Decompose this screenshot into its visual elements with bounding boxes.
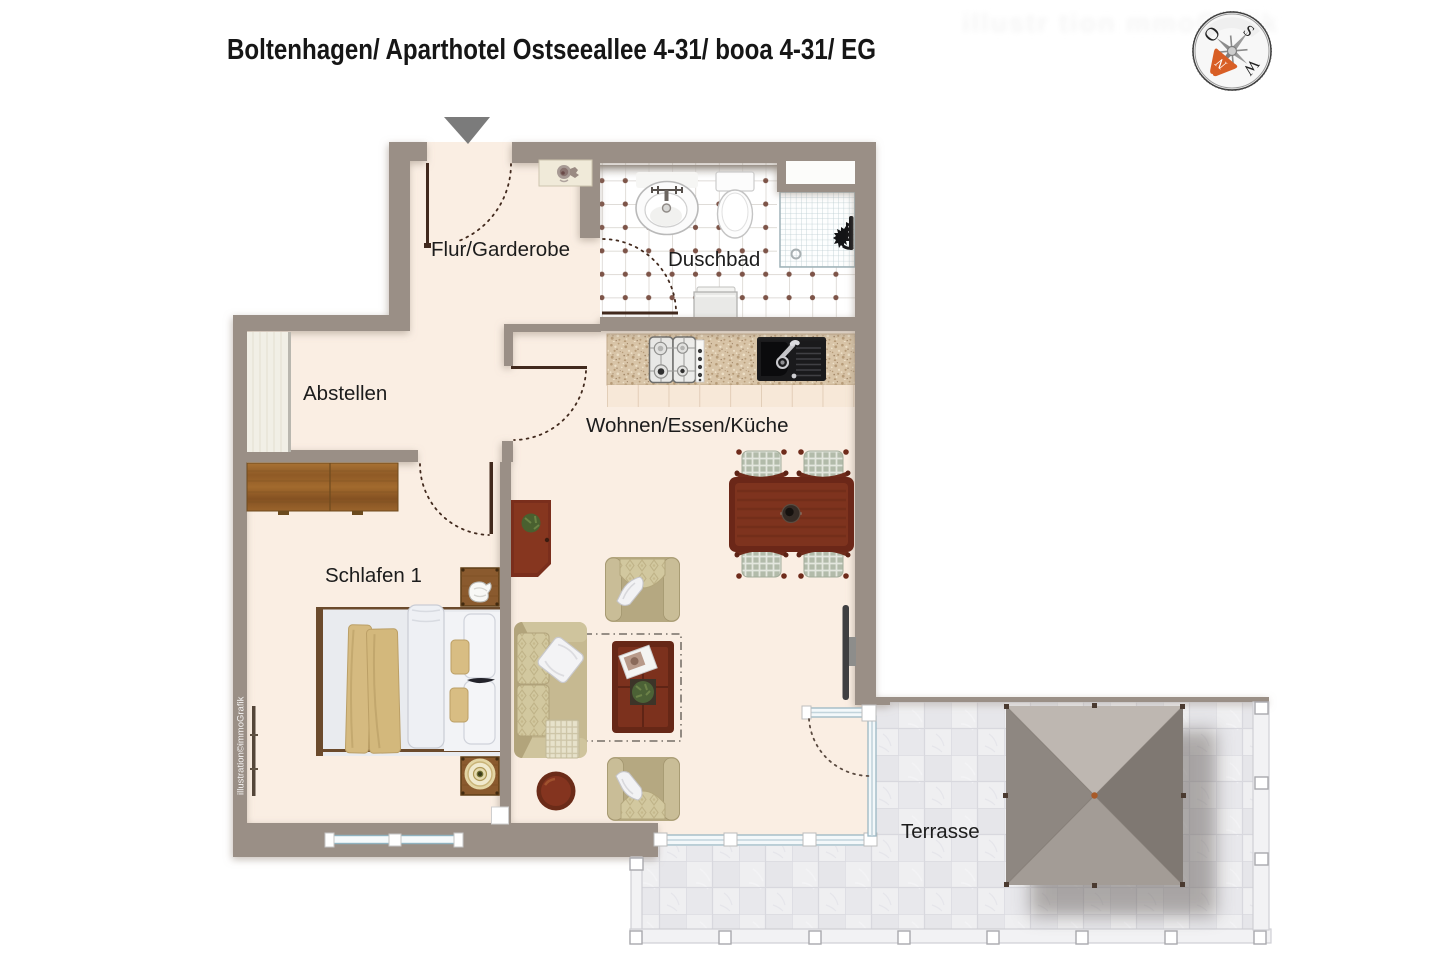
svg-text:Boltenhagen/ Aparthotel Ostsee: Boltenhagen/ Aparthotel Ostseeallee 4-31… <box>227 34 876 66</box>
svg-text:Schlafen 1: Schlafen 1 <box>325 564 422 587</box>
svg-text:Terrasse: Terrasse <box>901 820 980 843</box>
svg-text:Wohnen/Essen/Küche: Wohnen/Essen/Küche <box>586 414 788 437</box>
svg-text:illustration©immoGrafik: illustration©immoGrafik <box>236 696 247 795</box>
svg-text:Abstellen: Abstellen <box>303 382 387 405</box>
svg-text:Duschbad: Duschbad <box>668 248 760 271</box>
svg-text:Flur/Garderobe: Flur/Garderobe <box>431 238 570 261</box>
